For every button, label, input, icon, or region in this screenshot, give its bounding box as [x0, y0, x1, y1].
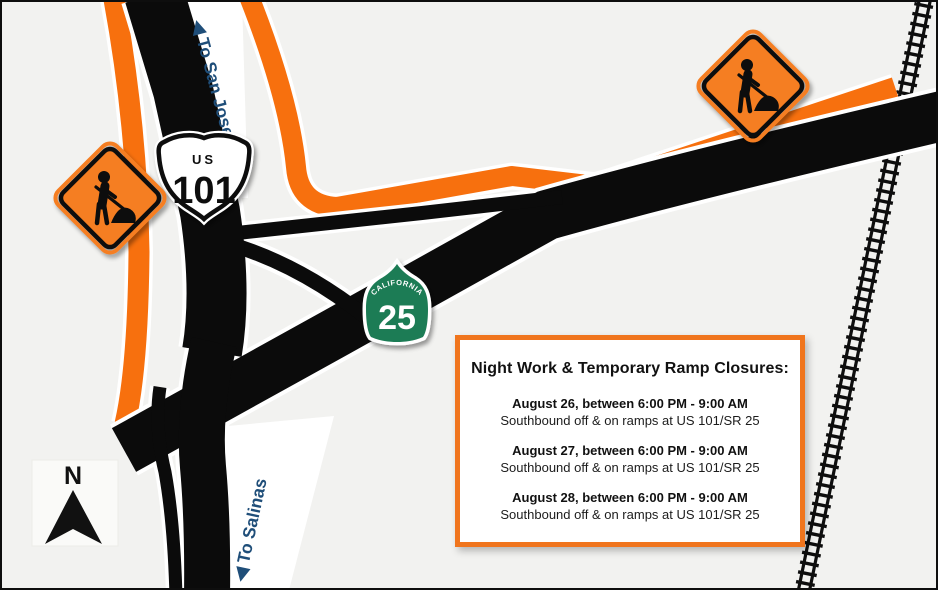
- closure-entry: August 27, between 6:00 PM - 9:00 AM Sou…: [460, 442, 800, 476]
- notice-title: Night Work & Temporary Ramp Closures:: [460, 360, 800, 378]
- compass-north-label: N: [64, 462, 82, 490]
- closure-detail: Southbound off & on ramps at US 101/SR 2…: [460, 412, 800, 429]
- compass: N: [32, 460, 118, 546]
- closure-entry: August 28, between 6:00 PM - 9:00 AM Sou…: [460, 489, 800, 523]
- closure-detail: Southbound off & on ramps at US 101/SR 2…: [460, 506, 800, 523]
- closure-date: August 26, between 6:00 PM - 9:00 AM: [460, 395, 800, 412]
- closure-entry: August 26, between 6:00 PM - 9:00 AM Sou…: [460, 395, 800, 429]
- closure-date: August 28, between 6:00 PM - 9:00 AM: [460, 489, 800, 506]
- closure-map: N: [0, 0, 938, 590]
- closure-detail: Southbound off & on ramps at US 101/SR 2…: [460, 459, 800, 476]
- svg-text:US: US: [192, 152, 216, 167]
- svg-text:25: 25: [378, 299, 416, 337]
- closure-notice-panel: Night Work & Temporary Ramp Closures: Au…: [455, 335, 805, 547]
- us101-highway-south: [202, 342, 214, 590]
- svg-text:101: 101: [172, 170, 235, 212]
- closure-date: August 27, between 6:00 PM - 9:00 AM: [460, 442, 800, 459]
